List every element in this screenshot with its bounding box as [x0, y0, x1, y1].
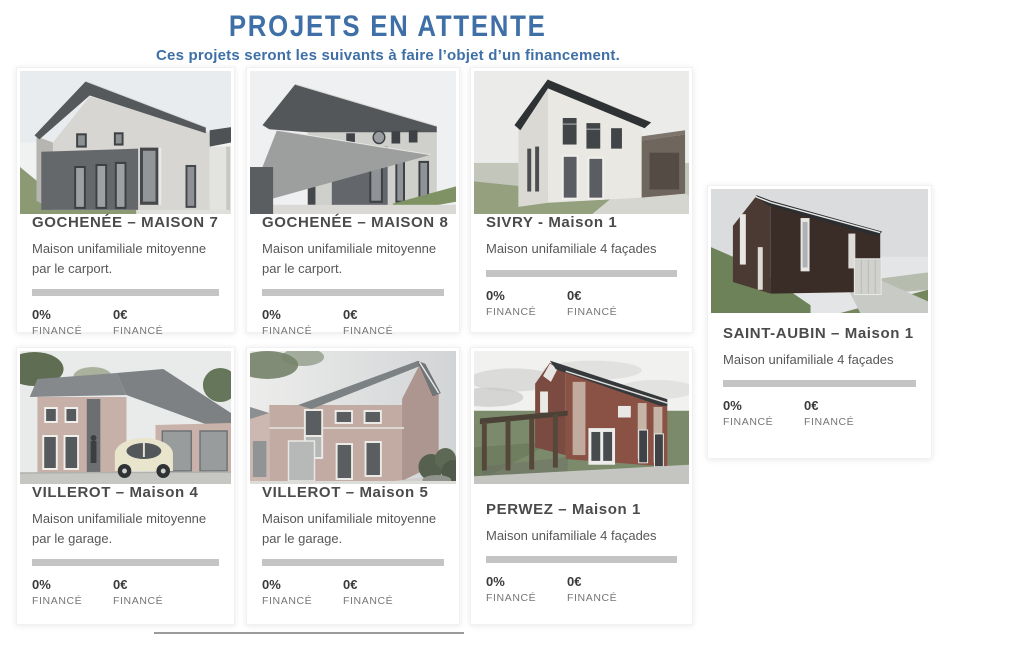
funding-stats: 0% FINANCÉ 0€ FINANCÉ	[723, 398, 916, 428]
funding-progress-bar	[262, 559, 444, 566]
percent-funded-label: FINANCÉ	[723, 416, 786, 428]
bottom-divider	[154, 632, 464, 634]
project-card-gochenee-maison-8[interactable]: GOCHENÉE – MAISON 8 Maison unifamiliale …	[246, 67, 460, 333]
project-description: Maison unifamiliale mitoyenne par le gar…	[262, 509, 444, 548]
project-title: SAINT-AUBIN – Maison 1	[723, 325, 916, 342]
percent-funded-value: 0%	[723, 398, 786, 413]
funding-stats: 0% FINANCÉ 0€ FINANCÉ	[262, 577, 444, 607]
project-image-gochenee-maison-7	[20, 71, 231, 214]
amount-funded-stat: 0€ FINANCÉ	[804, 398, 854, 428]
percent-funded-label: FINANCÉ	[262, 595, 325, 607]
amount-funded-value: 0€	[804, 398, 854, 413]
project-card-villerot-maison-4[interactable]: VILLEROT – Maison 4 Maison unifamiliale …	[16, 347, 235, 625]
project-card-gochenee-maison-7[interactable]: GOCHENÉE – MAISON 7 Maison unifamiliale …	[16, 67, 235, 333]
project-card-body: GOCHENÉE – MAISON 7 Maison unifamiliale …	[17, 214, 234, 357]
percent-funded-stat: 0% FINANCÉ	[486, 574, 549, 604]
percent-funded-value: 0%	[486, 288, 549, 303]
amount-funded-label: FINANCÉ	[343, 595, 393, 607]
amount-funded-label: FINANCÉ	[343, 325, 393, 337]
percent-funded-label: FINANCÉ	[486, 592, 549, 604]
percent-funded-label: FINANCÉ	[32, 595, 95, 607]
percent-funded-value: 0%	[32, 577, 95, 592]
funding-progress-bar	[723, 380, 916, 387]
page-header: PROJETS EN ATTENTE Ces projets seront le…	[0, 10, 776, 64]
project-description: Maison unifamiliale mitoyenne par le gar…	[32, 509, 219, 548]
funding-progress-bar	[486, 270, 677, 277]
amount-funded-stat: 0€ FINANCÉ	[343, 577, 393, 607]
project-image-villerot-maison-4	[20, 351, 231, 484]
percent-funded-stat: 0% FINANCÉ	[262, 577, 325, 607]
percent-funded-stat: 0% FINANCÉ	[486, 288, 549, 318]
project-description: Maison unifamiliale mitoyenne par le car…	[262, 239, 444, 278]
project-image-villerot-maison-5	[250, 351, 456, 484]
amount-funded-label: FINANCÉ	[567, 592, 617, 604]
amount-funded-value: 0€	[113, 577, 163, 592]
project-card-body: SIVRY - Maison 1 Maison unifamiliale 4 f…	[471, 214, 692, 338]
percent-funded-value: 0%	[262, 307, 325, 322]
amount-funded-value: 0€	[343, 577, 393, 592]
percent-funded-label: FINANCÉ	[32, 325, 95, 337]
project-card-body: SAINT-AUBIN – Maison 1 Maison unifamilia…	[708, 313, 931, 458]
funding-stats: 0% FINANCÉ 0€ FINANCÉ	[262, 307, 444, 337]
percent-funded-value: 0%	[262, 577, 325, 592]
project-title: GOCHENÉE – MAISON 7	[32, 214, 219, 231]
amount-funded-stat: 0€ FINANCÉ	[113, 307, 163, 337]
funding-stats: 0% FINANCÉ 0€ FINANCÉ	[486, 288, 677, 318]
project-title: VILLEROT – Maison 5	[262, 484, 444, 501]
percent-funded-value: 0%	[486, 574, 549, 589]
funding-stats: 0% FINANCÉ 0€ FINANCÉ	[32, 577, 219, 607]
project-card-perwez-maison-1[interactable]: PERWEZ – Maison 1 Maison unifamiliale 4 …	[470, 347, 693, 625]
percent-funded-stat: 0% FINANCÉ	[262, 307, 325, 337]
project-description: Maison unifamiliale 4 façades	[723, 350, 916, 370]
funding-progress-bar	[262, 289, 444, 296]
project-card-body: VILLEROT – Maison 4 Maison unifamiliale …	[17, 484, 234, 627]
project-title: PERWEZ – Maison 1	[486, 501, 677, 518]
funding-stats: 0% FINANCÉ 0€ FINANCÉ	[486, 574, 677, 604]
project-image-saint-aubin-maison-1	[711, 189, 928, 313]
amount-funded-label: FINANCÉ	[113, 595, 163, 607]
project-card-body: VILLEROT – Maison 5 Maison unifamiliale …	[247, 484, 459, 627]
amount-funded-value: 0€	[567, 574, 617, 589]
percent-funded-value: 0%	[32, 307, 95, 322]
amount-funded-label: FINANCÉ	[804, 416, 854, 428]
percent-funded-label: FINANCÉ	[486, 306, 549, 318]
amount-funded-label: FINANCÉ	[113, 325, 163, 337]
project-title: VILLEROT – Maison 4	[32, 484, 219, 501]
project-card-sivry-maison-1[interactable]: SIVRY - Maison 1 Maison unifamiliale 4 f…	[470, 67, 693, 333]
project-card-body: GOCHENÉE – MAISON 8 Maison unifamiliale …	[247, 214, 459, 357]
percent-funded-stat: 0% FINANCÉ	[32, 577, 95, 607]
project-description: Maison unifamiliale 4 façades	[486, 526, 677, 546]
page-subtitle: Ces projets seront les suivants à faire …	[0, 47, 776, 64]
percent-funded-stat: 0% FINANCÉ	[32, 307, 95, 337]
amount-funded-value: 0€	[343, 307, 393, 322]
project-title: SIVRY - Maison 1	[486, 214, 677, 231]
project-title: GOCHENÉE – MAISON 8	[262, 214, 444, 231]
funding-progress-bar	[32, 559, 219, 566]
amount-funded-stat: 0€ FINANCÉ	[567, 288, 617, 318]
projects-pending-page: PROJETS EN ATTENTE Ces projets seront le…	[0, 0, 1024, 650]
amount-funded-stat: 0€ FINANCÉ	[113, 577, 163, 607]
project-card-body: PERWEZ – Maison 1 Maison unifamiliale 4 …	[471, 484, 692, 624]
project-image-perwez-maison-1	[474, 351, 689, 484]
project-image-sivry-maison-1	[474, 71, 689, 214]
funding-stats: 0% FINANCÉ 0€ FINANCÉ	[32, 307, 219, 337]
project-image-gochenee-maison-8	[250, 71, 456, 214]
amount-funded-label: FINANCÉ	[567, 306, 617, 318]
project-description: Maison unifamiliale 4 façades	[486, 239, 677, 259]
amount-funded-stat: 0€ FINANCÉ	[567, 574, 617, 604]
amount-funded-value: 0€	[113, 307, 163, 322]
amount-funded-value: 0€	[567, 288, 617, 303]
project-description: Maison unifamiliale mitoyenne par le car…	[32, 239, 219, 278]
page-title: PROJETS EN ATTENTE	[229, 10, 547, 44]
amount-funded-stat: 0€ FINANCÉ	[343, 307, 393, 337]
funding-progress-bar	[32, 289, 219, 296]
percent-funded-stat: 0% FINANCÉ	[723, 398, 786, 428]
project-card-saint-aubin-maison-1[interactable]: SAINT-AUBIN – Maison 1 Maison unifamilia…	[707, 185, 932, 459]
percent-funded-label: FINANCÉ	[262, 325, 325, 337]
project-card-villerot-maison-5[interactable]: VILLEROT – Maison 5 Maison unifamiliale …	[246, 347, 460, 625]
funding-progress-bar	[486, 556, 677, 563]
